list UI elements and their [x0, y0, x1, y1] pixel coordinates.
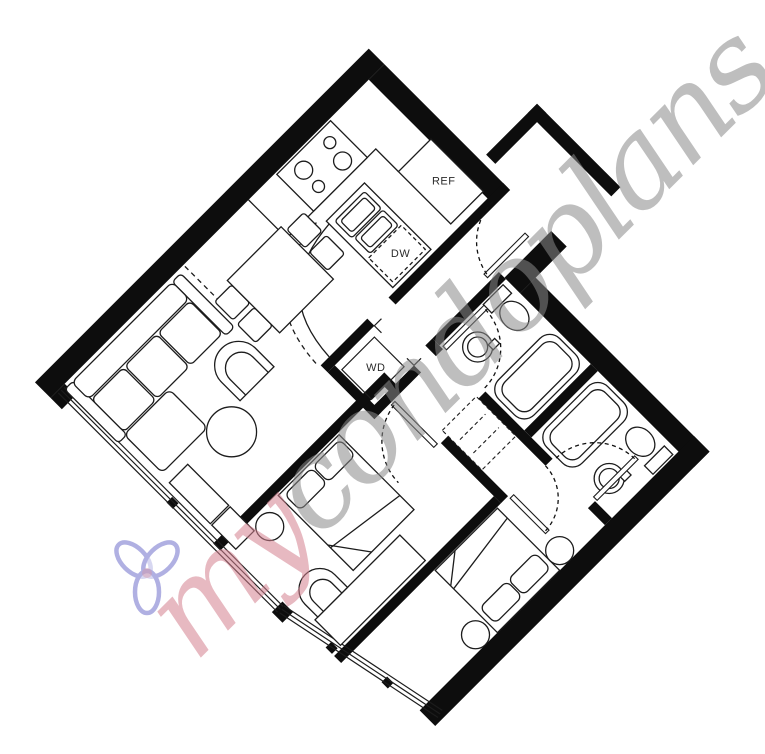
floor-plan-svg: REF DW WD mycondoplans: [0, 0, 765, 754]
refrigerator-label: REF: [432, 175, 456, 187]
floor-plan-image: REF DW WD mycondoplans: [0, 0, 765, 754]
flower-center: [142, 568, 152, 578]
dishwasher-label: DW: [391, 248, 410, 260]
